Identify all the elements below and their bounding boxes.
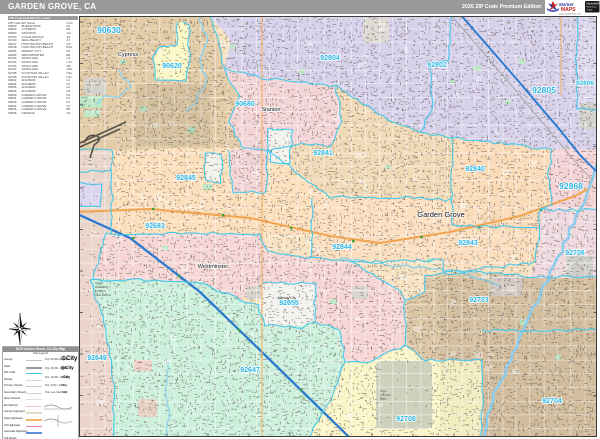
svg-text:92708: 92708	[396, 416, 416, 423]
svg-text:MarketMAPS: MarketMAPS	[587, 2, 600, 6]
svg-text:Cypress: Cypress	[118, 52, 138, 58]
svg-text:90630: 90630	[97, 25, 121, 35]
svg-text:NAVAL: NAVAL	[95, 281, 104, 285]
svg-text:Stanton: Stanton	[262, 107, 281, 113]
svg-text:Guide: Guide	[587, 10, 594, 12]
svg-text:92804: 92804	[320, 55, 340, 62]
svg-text:92843: 92843	[458, 240, 478, 247]
svg-text:SEAL BEACH: SEAL BEACH	[95, 293, 111, 297]
svg-text:92647: 92647	[240, 367, 260, 374]
svg-text:Garden Grove: Garden Grove	[417, 210, 465, 219]
svg-text:92840: 92840	[465, 166, 485, 173]
svg-text:92806: 92806	[576, 80, 594, 87]
svg-text:92845: 92845	[176, 175, 196, 182]
svg-text:MILE: MILE	[380, 389, 386, 393]
svg-text:92841: 92841	[313, 150, 333, 157]
svg-text:92706: 92706	[565, 250, 585, 257]
svg-text:92649: 92649	[87, 355, 107, 362]
svg-text:92655: 92655	[279, 300, 299, 307]
svg-text:WEAPONS: WEAPONS	[95, 285, 109, 289]
svg-text:92868: 92868	[559, 181, 583, 191]
svg-text:MAPS: MAPS	[561, 7, 576, 13]
svg-text:92683: 92683	[145, 223, 165, 230]
svg-text:PARK: PARK	[380, 397, 387, 401]
svg-text:STATION: STATION	[95, 289, 106, 293]
svg-text:92844: 92844	[332, 244, 352, 251]
svg-text:90680: 90680	[235, 101, 255, 108]
svg-text:Westminster: Westminster	[198, 264, 229, 270]
svg-text:SQUARE: SQUARE	[380, 393, 391, 397]
svg-text:Reference: Reference	[587, 6, 598, 9]
svg-text:Midway City: Midway City	[278, 296, 297, 300]
svg-text:92703: 92703	[469, 297, 489, 304]
svg-text:92805: 92805	[532, 85, 556, 95]
svg-text:90620: 90620	[162, 63, 182, 70]
svg-text:www.marketmaps.com: www.marketmaps.com	[559, 13, 581, 16]
svg-text:92704: 92704	[542, 398, 562, 405]
svg-text:92802: 92802	[427, 62, 447, 69]
